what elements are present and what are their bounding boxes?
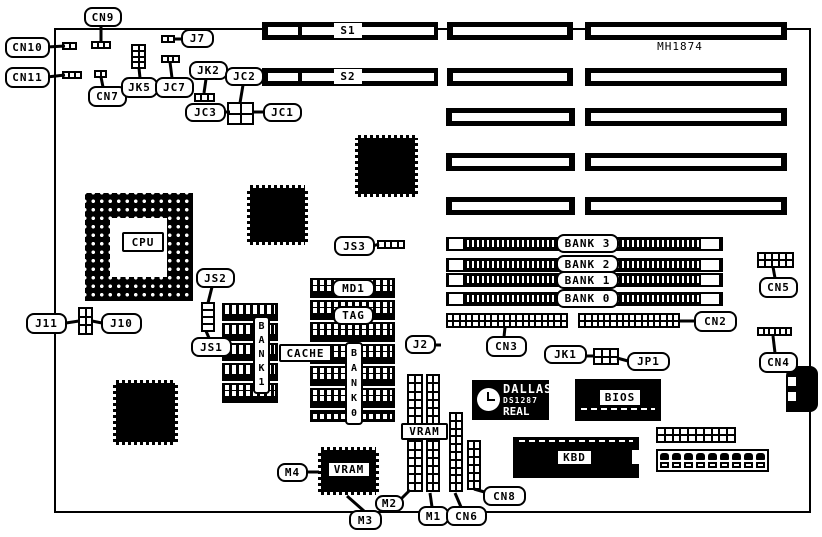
clock-icon	[477, 388, 500, 411]
simm-latch-right-bank2	[699, 258, 721, 272]
chip-qfp-middle	[247, 185, 308, 245]
slot-seg	[585, 153, 787, 171]
label-jk5: JK5	[121, 77, 158, 98]
label-tag: TAG	[333, 306, 374, 325]
cn11-connector	[62, 71, 82, 79]
cn4-header	[757, 327, 792, 336]
simm-latch-left-bank2	[447, 258, 465, 272]
label-jc3: JC3	[185, 103, 226, 122]
label-cn9: CN9	[84, 7, 122, 27]
simm-latch-left-bank1	[447, 273, 465, 287]
label-bank1-simm: BANK 1	[556, 271, 619, 289]
keyboard-connector-pin	[788, 377, 796, 386]
label-jp1: JP1	[627, 352, 670, 371]
power-terminal-block	[656, 449, 769, 472]
js3-connector	[377, 240, 405, 249]
j10-j11-jumper	[78, 307, 93, 335]
cn7-connector	[94, 70, 107, 78]
label-cn2: CN2	[694, 311, 737, 332]
kbd-chip-notch	[632, 450, 639, 464]
label-jk1: JK1	[544, 345, 587, 364]
dallas-part-number: DS1287	[503, 396, 552, 405]
cn2-header	[578, 313, 680, 328]
cn9-connector	[91, 41, 111, 49]
cn6-connector	[449, 412, 463, 492]
slot-seg	[446, 153, 575, 171]
kbd-chip-dash	[519, 440, 633, 442]
jc1-jc2-jc3-jumper	[227, 102, 254, 125]
label-jc1: JC1	[263, 103, 302, 122]
simm-latch-right-bank1	[699, 273, 721, 287]
cache-socket	[310, 322, 395, 342]
keyboard-connector-pin	[788, 392, 796, 401]
label-jk2: JK2	[189, 61, 228, 80]
label-cpu: CPU	[122, 232, 164, 252]
cn8-connector	[467, 440, 481, 490]
j7-connector	[161, 35, 175, 43]
board-title: MH1874	[648, 40, 712, 54]
js1-js2-jumper	[201, 302, 215, 332]
jk5-jumper	[131, 44, 146, 69]
label-bios: BIOS	[598, 388, 642, 407]
simm-latch-left-bank3	[447, 237, 465, 251]
slot-seg	[585, 197, 787, 215]
label-jc2: JC2	[225, 67, 264, 86]
label-m4: M4	[277, 463, 308, 482]
label-m3: M3	[349, 510, 382, 530]
label-vram-chip: VRAM	[327, 461, 371, 478]
label-js1: JS1	[191, 337, 232, 357]
label-j11: J11	[26, 313, 67, 334]
slot-seg	[585, 68, 787, 86]
label-bank0-simm: BANK 0	[556, 289, 619, 308]
label-cn4: CN4	[759, 352, 798, 373]
label-cn3: CN3	[486, 336, 527, 357]
label-m1: M1	[418, 506, 449, 526]
label-kbd: KBD	[556, 449, 593, 466]
simm-latch-right-bank3	[699, 237, 721, 251]
slot-seg	[585, 22, 787, 40]
label-cn10: CN10	[5, 37, 50, 58]
chip-qfp-lower-left	[113, 380, 178, 445]
simm-latch-right-bank0	[699, 292, 721, 306]
label-cn5: CN5	[759, 277, 798, 298]
slot-seg	[446, 197, 575, 215]
dallas-rtc-chip: DALLAS DS1287 REAL TIME	[472, 380, 549, 420]
label-md1: MD1	[332, 279, 375, 298]
label-jc7: JC7	[155, 77, 194, 98]
slot-seg	[446, 108, 575, 126]
label-s1: S1	[334, 23, 362, 38]
cn1-header	[656, 427, 736, 443]
label-js2: JS2	[196, 268, 235, 288]
label-js3: JS3	[334, 236, 375, 256]
jk1-jumper	[593, 348, 619, 365]
slot-seg	[447, 22, 573, 40]
bios-chip-dash	[581, 408, 655, 410]
label-cn8: CN8	[483, 486, 526, 506]
label-bank0-cache: BANK0	[345, 342, 363, 425]
label-m2: M2	[375, 495, 404, 512]
cn3-header	[446, 313, 568, 328]
motherboard-diagram: DALLAS DS1287 REAL TIME MH1874 CN9CN10CN…	[0, 0, 822, 537]
simm-latch-left-bank0	[447, 292, 465, 306]
label-cache: CACHE	[279, 344, 332, 362]
cn5-header	[757, 252, 794, 268]
label-vram-modules: VRAM	[401, 423, 448, 440]
terminal-bottom-row	[660, 462, 765, 469]
label-j7: J7	[181, 29, 214, 48]
label-bank3-simm: BANK 3	[556, 234, 619, 253]
dallas-brand: DALLAS	[503, 383, 552, 396]
chip-qfp-upper	[355, 135, 418, 197]
label-j10: J10	[101, 313, 142, 334]
label-bank1-cache: BANK1	[253, 316, 270, 394]
label-cn11: CN11	[5, 67, 50, 88]
label-s2: S2	[334, 69, 362, 84]
label-j2: J2	[405, 335, 436, 354]
slot-seg	[585, 108, 787, 126]
jc7-connector	[161, 55, 180, 63]
dallas-real-time: REAL TIME	[503, 405, 552, 431]
terminal-top-row	[660, 453, 765, 460]
jk2-jumper	[194, 93, 215, 102]
cn10-connector	[62, 42, 77, 50]
slot-seg	[447, 68, 573, 86]
label-cn6: CN6	[446, 506, 487, 526]
